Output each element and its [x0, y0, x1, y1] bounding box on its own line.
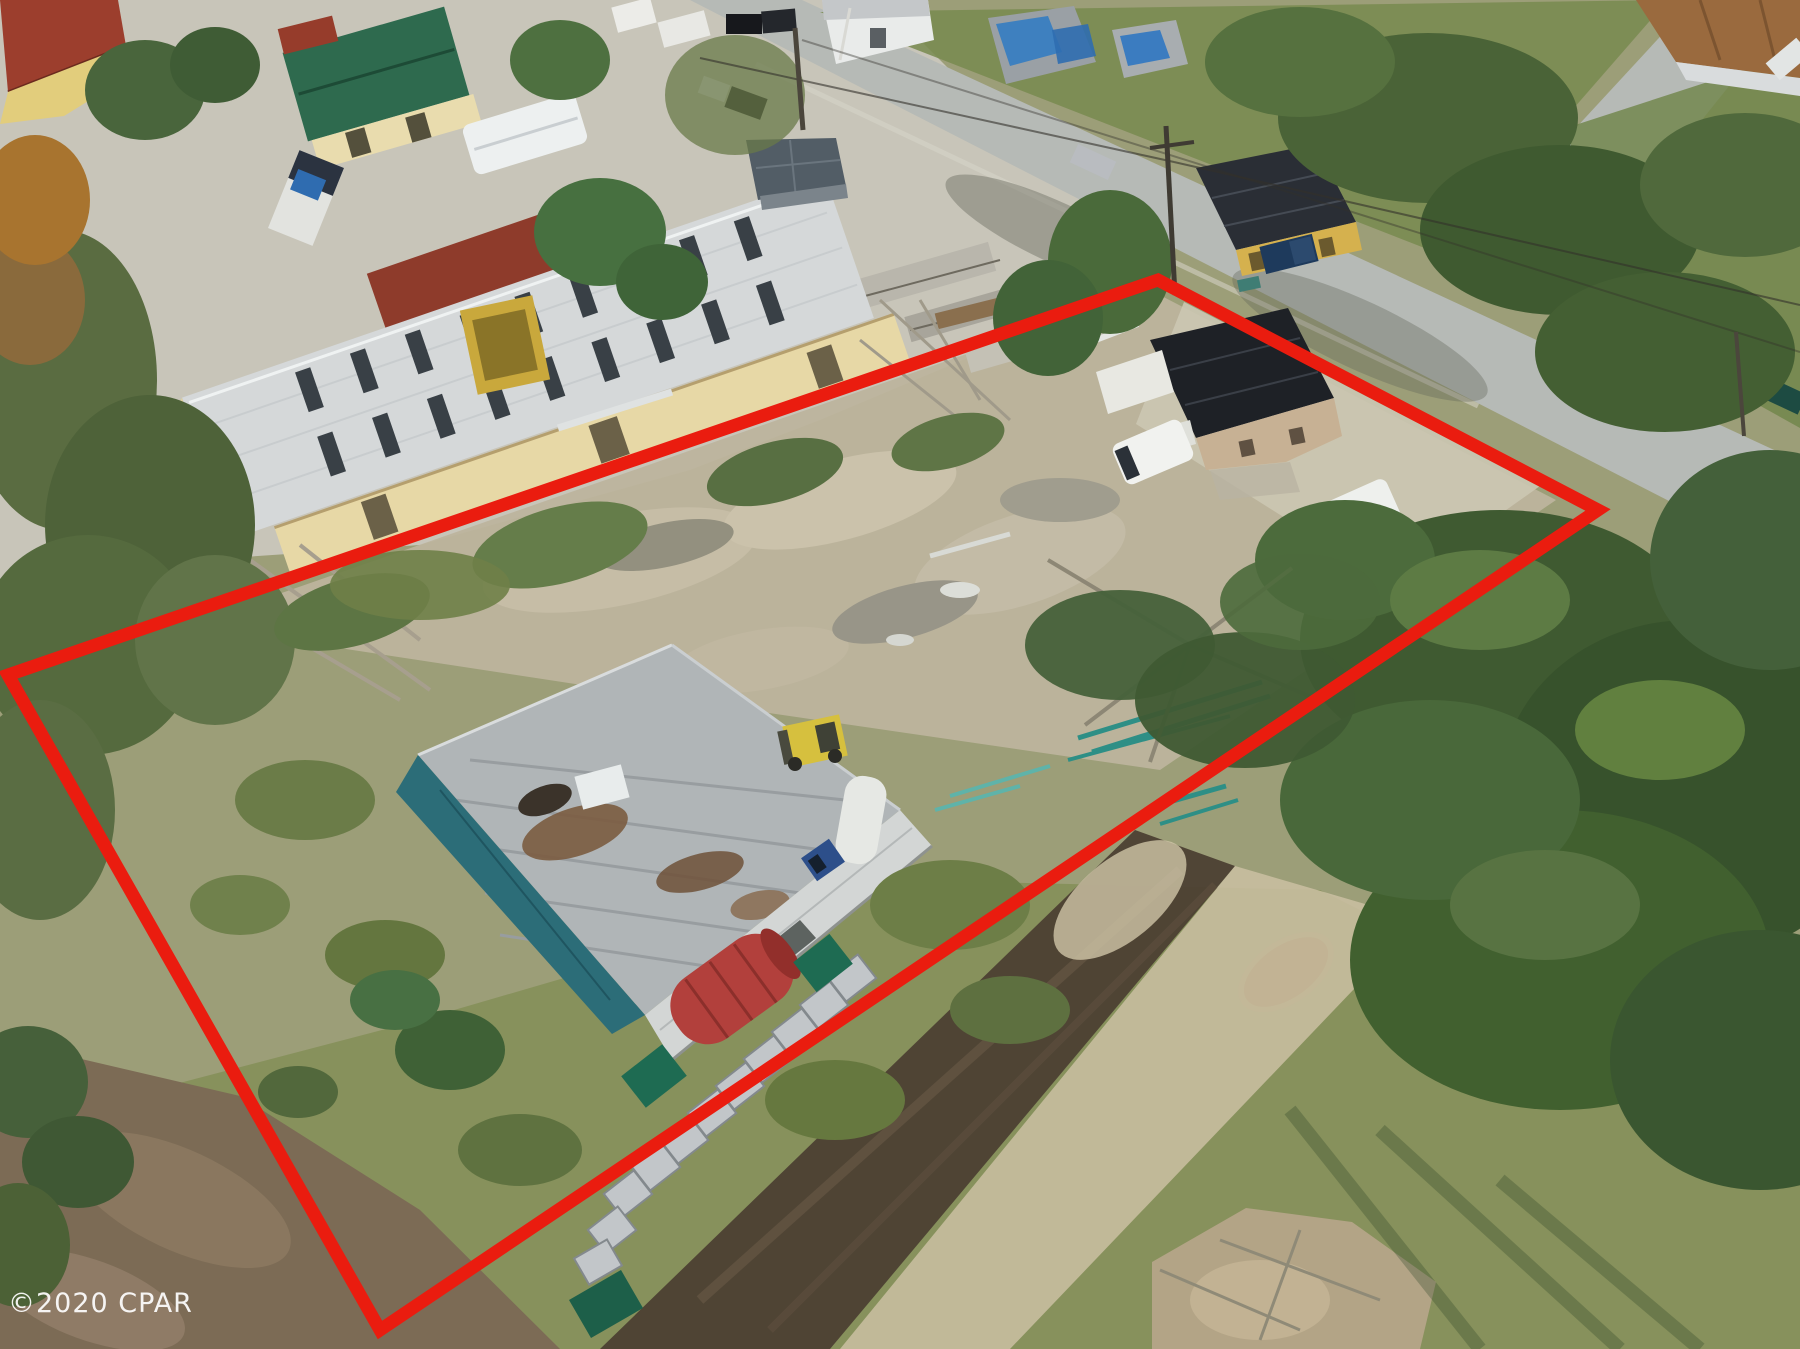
field-shrub: [458, 1114, 582, 1186]
copyright-watermark: ©2020 CPAR: [8, 1288, 193, 1319]
field-shrub: [765, 1060, 905, 1140]
tree-highlight: [1450, 850, 1640, 960]
aerial-property-photo: ©2020 CPAR: [0, 0, 1800, 1349]
tree-highlight: [1575, 680, 1745, 780]
fallen-tree-foliage: [1220, 554, 1380, 650]
tree-canopy: [1205, 7, 1395, 117]
palm-by-building: [350, 970, 440, 1030]
forklift-wheel: [828, 749, 842, 763]
forklift-wheel: [788, 757, 802, 771]
white-house-door: [870, 28, 886, 48]
white-debris: [940, 582, 980, 598]
aerial-scene-canvas: [0, 0, 1800, 1349]
field-shrub: [950, 976, 1070, 1044]
street-tree: [665, 35, 805, 155]
palm-cluster: [616, 244, 708, 320]
field-shrub: [190, 875, 290, 935]
white-debris: [886, 634, 914, 646]
black-sedan: [726, 14, 762, 34]
old-asphalt-patch: [1000, 478, 1120, 522]
tree-canopy: [1535, 272, 1795, 432]
field-shrub: [258, 1066, 338, 1118]
palm-cluster: [510, 20, 610, 100]
palm-top-left: [170, 27, 260, 103]
dark-pickup: [761, 9, 797, 34]
field-shrub: [235, 760, 375, 840]
